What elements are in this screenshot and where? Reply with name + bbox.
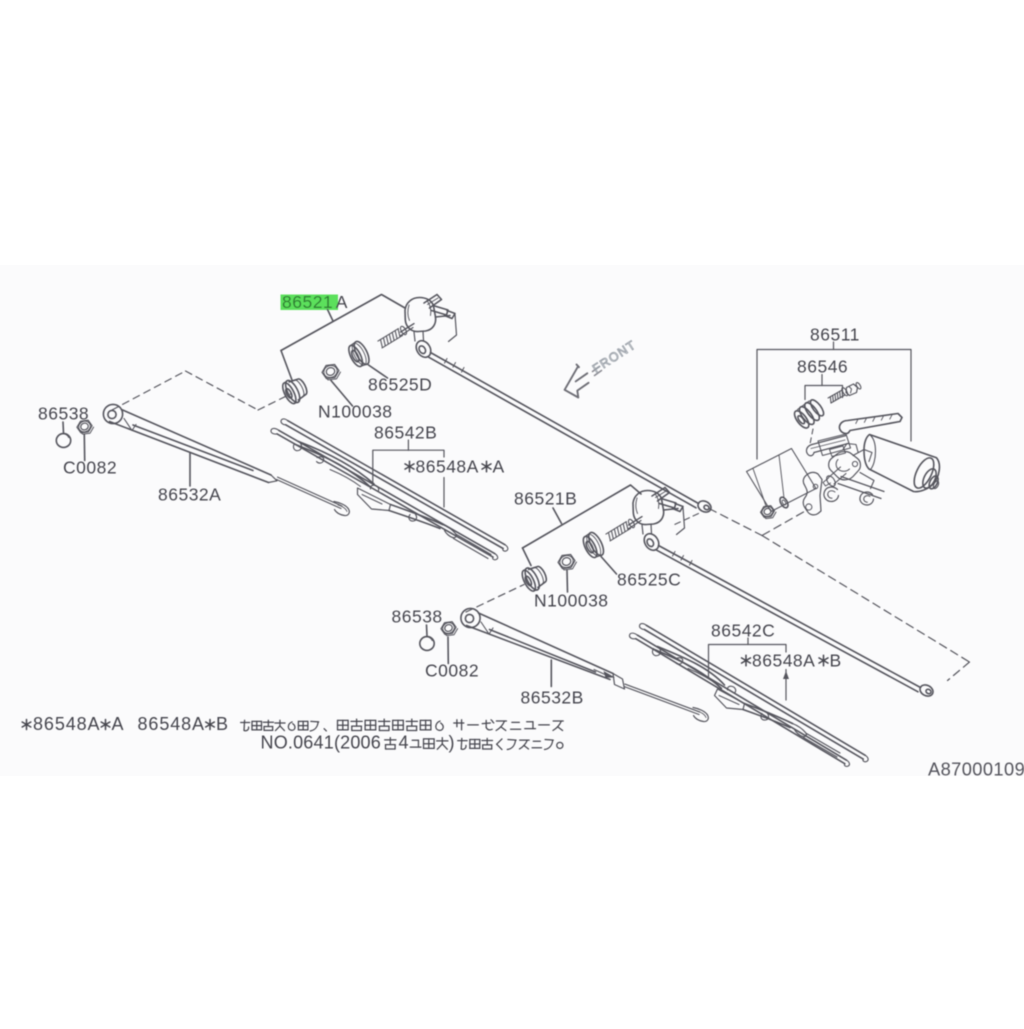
svg-text:N100038: N100038	[318, 402, 393, 422]
svg-text:86546: 86546	[797, 357, 848, 377]
svg-text:86521: 86521	[282, 292, 333, 312]
svg-text:86548A: 86548A	[416, 457, 479, 477]
svg-text:86532A: 86532A	[158, 485, 221, 505]
svg-text:A: A	[336, 292, 348, 312]
svg-text:B: B	[216, 714, 229, 734]
svg-text:86525D: 86525D	[368, 375, 432, 395]
svg-text:A: A	[493, 457, 505, 477]
svg-text:86548A: 86548A	[752, 651, 815, 671]
svg-text:4: 4	[399, 733, 409, 753]
svg-text:C0082: C0082	[63, 458, 117, 478]
svg-text:A: A	[112, 714, 125, 734]
svg-text:86542C: 86542C	[711, 621, 775, 641]
svg-text:86542B: 86542B	[374, 423, 437, 443]
svg-text:86548A: 86548A	[33, 714, 100, 734]
svg-text:86525C: 86525C	[617, 570, 681, 590]
svg-text:NO.0641(2006: NO.0641(2006	[261, 733, 381, 753]
svg-text:): )	[449, 733, 455, 753]
svg-text:A8700010951: A8700010951	[928, 759, 1024, 780]
svg-text:B: B	[830, 651, 842, 671]
svg-text:86548A: 86548A	[138, 714, 205, 734]
svg-text:86538: 86538	[392, 607, 443, 627]
svg-text:86521B: 86521B	[514, 489, 577, 509]
svg-text:86511: 86511	[810, 325, 860, 345]
svg-text:C0082: C0082	[425, 661, 479, 681]
svg-text:86532B: 86532B	[521, 688, 584, 708]
svg-text:N100038: N100038	[534, 591, 609, 611]
